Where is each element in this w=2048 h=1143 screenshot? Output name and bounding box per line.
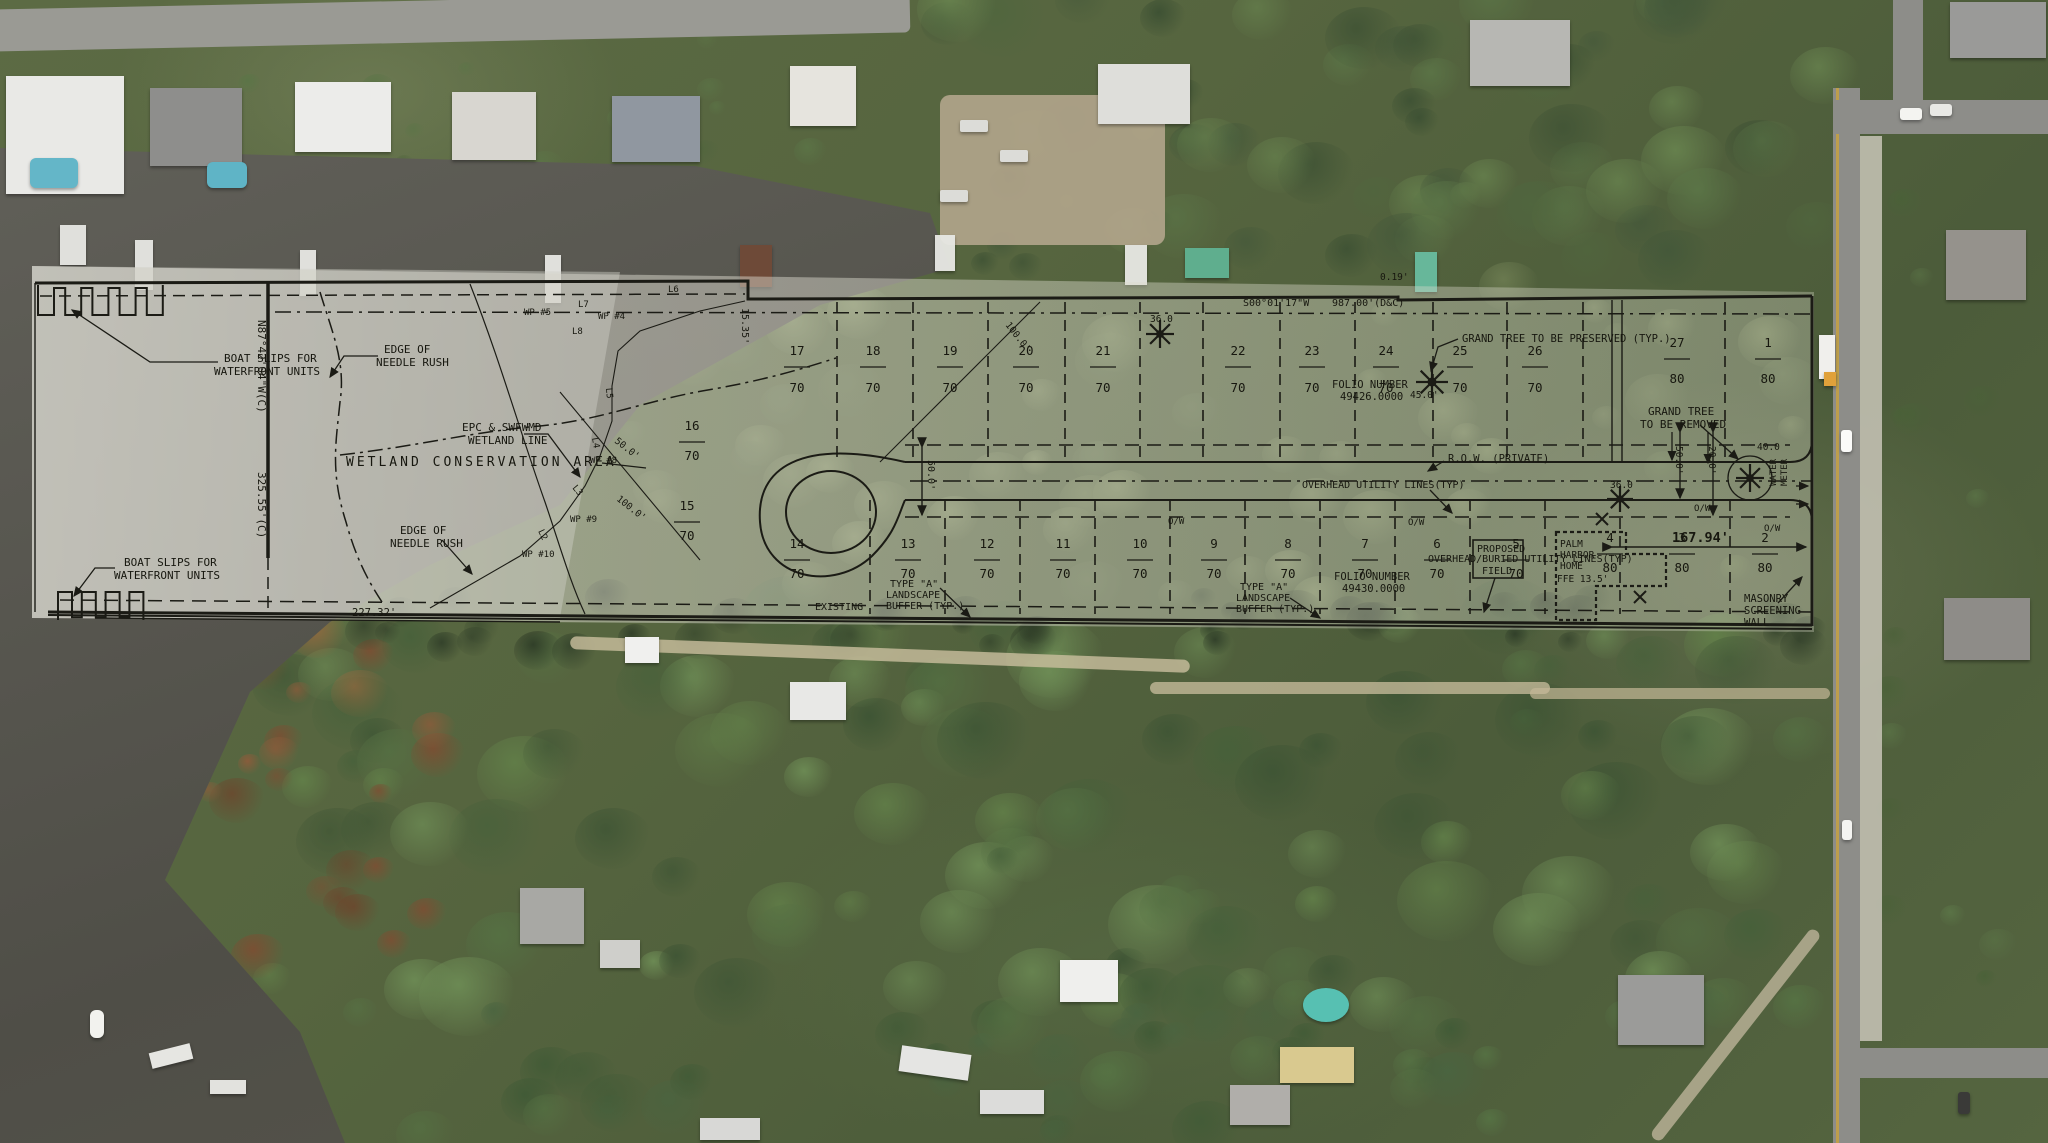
label-edge-needle-2b: NEEDLE RUSH — [390, 537, 463, 550]
label-ffe: FFE 13.5' — [1557, 574, 1608, 585]
lot-number: 15 — [679, 498, 694, 513]
label-epc-1: EPC & SWFWMD — [462, 421, 541, 434]
dim-36-1: 36.0 — [1150, 314, 1173, 325]
lot-size: 70 — [789, 566, 804, 581]
lot-size: 70 — [1357, 566, 1372, 581]
lot-size: 70 — [1527, 380, 1542, 395]
lot-size: 70 — [1230, 380, 1245, 395]
label-boat-slips-top-1: BOAT SLIPS FOR — [224, 352, 317, 365]
lot-size: 70 — [1132, 566, 1147, 581]
lot-number: 22 — [1230, 343, 1245, 358]
lot-size: 70 — [1280, 566, 1295, 581]
lot-number: 24 — [1378, 343, 1393, 358]
lot-number: 17 — [789, 343, 804, 358]
bearing-north-1: S00°01'17"W — [1243, 298, 1310, 309]
lot-number: 13 — [900, 536, 915, 551]
lot-size: 70 — [1055, 566, 1070, 581]
lot-number: 14 — [789, 536, 804, 551]
lot-number: 1 — [1764, 335, 1772, 350]
lot-number: 25 — [1452, 343, 1467, 358]
lot-number: 11 — [1055, 536, 1070, 551]
label-type-a2-2: LANDSCAPE — [1236, 593, 1290, 604]
lot-size: 70 — [1429, 566, 1444, 581]
lot-size: 70 — [684, 448, 699, 463]
label-palm: PALM — [1560, 539, 1583, 550]
label-type-a2-3: BUFFER (TYP.) — [1236, 604, 1314, 615]
lot-size: 70 — [979, 566, 994, 581]
lot-number: 18 — [865, 343, 880, 358]
label-overhead-utility: OVERHEAD UTILITY LINES(TYP) — [1302, 480, 1465, 491]
label-boat-slips-bottom-1: BOAT SLIPS FOR — [124, 556, 217, 569]
lot-size: 70 — [1304, 380, 1319, 395]
lot-size: 70 — [865, 380, 880, 395]
lot-number: 23 — [1304, 343, 1319, 358]
wp-4: WP #4 — [598, 312, 625, 322]
lot-size: 70 — [1378, 380, 1393, 395]
label-epc-2: WETLAND LINE — [468, 434, 547, 447]
wp-5: WP #5 — [524, 308, 551, 318]
lot-size: 80 — [1674, 560, 1689, 575]
lot-size: 70 — [789, 380, 804, 395]
dim-jog: 0.19' — [1380, 272, 1409, 283]
lot-size: 80 — [1669, 371, 1684, 386]
label-ow-2: O/W — [1168, 517, 1185, 527]
lot-number: 5 — [1512, 536, 1520, 551]
dim-south: 227.32' — [352, 607, 396, 619]
aerial-site-plan-overlay: BOAT SLIPS FOR WATERFRONT UNITS BOAT SLI… — [0, 0, 2048, 1143]
dim-45: 45.0' — [1410, 390, 1439, 401]
lot-size: 80 — [1760, 371, 1775, 386]
lot-number: 3 — [1678, 530, 1686, 545]
tag-l5: L5 — [603, 387, 614, 399]
label-water-meter-2: METER — [1780, 458, 1790, 486]
label-grand-tree-removed-2: TO BE REMOVED — [1640, 418, 1726, 431]
label-home: HOME — [1560, 561, 1583, 572]
lot-number: 12 — [979, 536, 994, 551]
label-ow-1: O/W — [1408, 518, 1425, 528]
label-wetland-area: WETLAND CONSERVATION AREA — [346, 455, 617, 470]
label-edge-needle-1a: EDGE OF — [384, 343, 430, 356]
label-grand-tree-removed-1: GRAND TREE — [1648, 405, 1714, 418]
lot-size: 70 — [1095, 380, 1110, 395]
label-edge-needle-1b: NEEDLE RUSH — [376, 356, 449, 369]
lot-size: 70 — [1508, 566, 1523, 581]
lot-size: 70 — [942, 380, 957, 395]
label-grand-tree-preserved: GRAND TREE TO BE PRESERVED (TYP.) — [1462, 333, 1671, 345]
tag-l8: L8 — [572, 327, 583, 337]
lot-size: 70 — [900, 566, 915, 581]
bearing-north-2: 987.00'(D&C) — [1332, 298, 1404, 309]
lot-number: 19 — [942, 343, 957, 358]
label-harbor: HARBOR — [1560, 550, 1595, 561]
wp-9: WP #9 — [570, 515, 597, 525]
lot-number: 10 — [1132, 536, 1147, 551]
wp-10: WP #10 — [522, 550, 555, 560]
lot-number: 4 — [1606, 530, 1614, 545]
lot-number: 2 — [1761, 530, 1769, 545]
lot-size: 70 — [1018, 380, 1033, 395]
label-ow-3: O/W — [1694, 504, 1711, 514]
lot-size: 70 — [679, 528, 694, 543]
lot-number: 9 — [1210, 536, 1218, 551]
lot-size: 70 — [1452, 380, 1467, 395]
tag-l6: L6 — [668, 285, 679, 295]
dim-1535: 15.35' — [739, 308, 750, 344]
lot-number: 26 — [1527, 343, 1542, 358]
grand-tree-symbol — [1736, 464, 1764, 492]
label-type-a1-3: BUFFER (TYP.) — [886, 601, 964, 612]
bearing-west-2: 325.55'(C) — [255, 472, 268, 538]
label-folio-north-1: FOLIO NUMBER — [1332, 379, 1409, 391]
lot-number: 27 — [1669, 335, 1684, 350]
label-existing: EXISTING — [815, 602, 863, 613]
lot-number: 6 — [1433, 536, 1441, 551]
lot-number: 8 — [1284, 536, 1292, 551]
tag-l4: L4 — [589, 437, 601, 449]
label-masonry-1: MASONRY — [1744, 593, 1789, 605]
dim-50-road: 50.0' — [925, 460, 936, 490]
lot-size: 70 — [1206, 566, 1221, 581]
label-masonry-2: SCREENING — [1744, 605, 1801, 617]
label-boat-slips-bottom-2: WATERFRONT UNITS — [114, 569, 220, 582]
dim-50-exit: 50.0' — [1673, 446, 1684, 475]
dim-20-exit: 20.0' — [1706, 446, 1717, 475]
bearing-west-1: N87°42'04"W(C) — [255, 320, 268, 413]
dim-40: 40.0 — [1757, 442, 1780, 453]
label-row-private: R.O.W. (PRIVATE) — [1448, 453, 1549, 465]
site-plan-overlay: BOAT SLIPS FOR WATERFRONT UNITS BOAT SLI… — [0, 0, 2048, 1143]
lot-number: 16 — [684, 418, 699, 433]
label-type-a1-2: LANDSCAPE — [886, 590, 940, 601]
label-folio-south-2: 49430.0000 — [1342, 583, 1405, 595]
lot-number: 21 — [1095, 343, 1110, 358]
label-type-a2-1: TYPE "A" — [1240, 582, 1288, 593]
lot-size: 80 — [1602, 560, 1617, 575]
dim-36-2: 36.0 — [1610, 480, 1633, 491]
label-edge-needle-2a: EDGE OF — [400, 524, 446, 537]
wp-8: WP #8 — [590, 456, 617, 466]
lot-size: 80 — [1757, 560, 1772, 575]
lot-number: 20 — [1018, 343, 1033, 358]
label-water-meter-1: WATER — [1769, 458, 1779, 486]
label-folio-north-2: 49426.0000 — [1340, 391, 1403, 403]
lot-number: 7 — [1361, 536, 1369, 551]
label-masonry-3: WALL — [1744, 617, 1769, 629]
tag-l7: L7 — [578, 300, 589, 310]
